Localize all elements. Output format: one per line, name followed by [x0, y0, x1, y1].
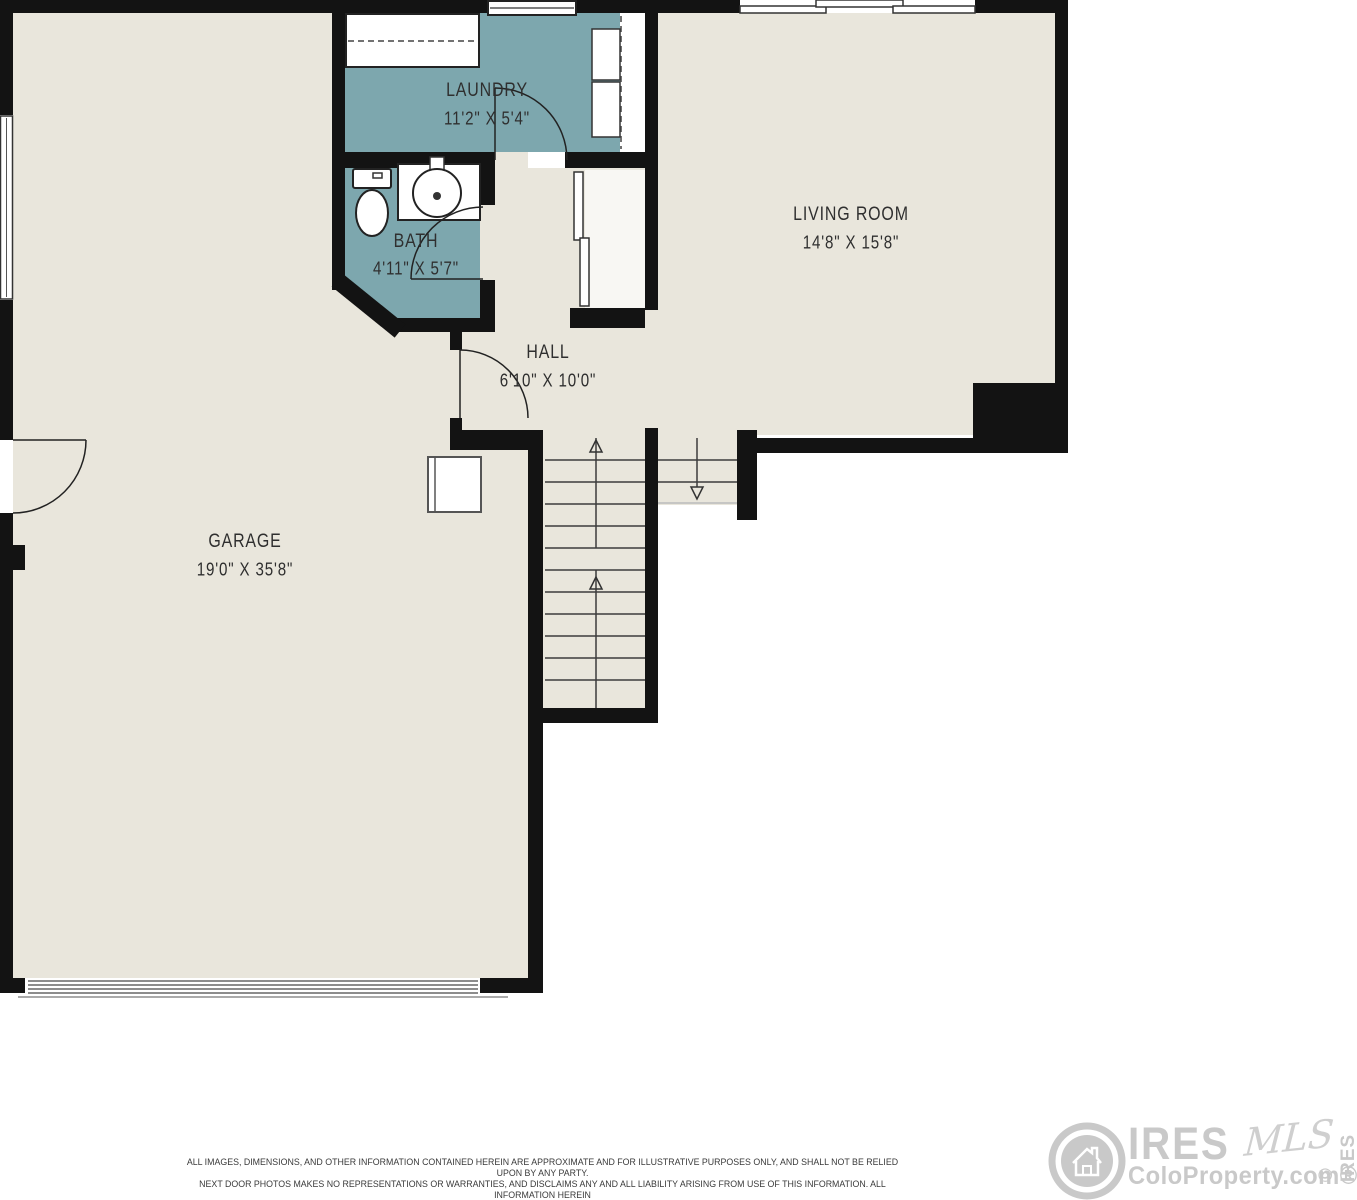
wall-laundry-bath-divider: [332, 152, 495, 168]
room-label-bath: BATH: [394, 231, 439, 253]
disclaimer-line-2: NEXT DOOR PHOTOS MAKES NO REPRESENTATION…: [177, 1179, 907, 1200]
wall-hall-bottom: [450, 430, 543, 450]
wall-living-bottom: [757, 438, 973, 453]
house-roof-icon: [1073, 1148, 1101, 1163]
wall-living-notch: [973, 383, 1068, 453]
wall-left-mid: [0, 300, 13, 440]
wall-top-left: [10, 0, 488, 13]
logo-copyright-text: © IRES: [1316, 1134, 1357, 1182]
stairs-floor: [543, 438, 658, 708]
wall-top-mid: [576, 0, 740, 13]
logo-house-emblem: [1052, 1126, 1122, 1196]
window-pane-left: [740, 6, 826, 13]
laundry-counter-strip: [620, 13, 645, 152]
room-label-laundry: LAUNDRY: [446, 80, 528, 102]
downstairs-floor: [658, 430, 737, 505]
logo-disc: [1061, 1135, 1113, 1187]
living-room-floor-lower: [658, 383, 973, 435]
wall-stairs-center: [645, 428, 658, 723]
disclaimer-line-1: ALL IMAGES, DIMENSIONS, AND OTHER INFORM…: [177, 1157, 907, 1179]
wall-garage-right: [528, 430, 543, 993]
wall-closet-bottom: [570, 308, 645, 328]
room-dims-garage: 19'0" X 35'8": [197, 560, 293, 581]
room-dims-laundry: 11'2" X 5'4": [444, 109, 530, 130]
closet-floor: [585, 170, 645, 310]
wall-garage-bottom: [0, 978, 543, 993]
wall-laundry-left: [332, 0, 345, 290]
room-dims-hall: 6'10" X 10'0": [500, 371, 596, 392]
living-room-floor: [658, 13, 1055, 383]
wall-living-left: [645, 0, 658, 310]
wall-right: [1055, 0, 1068, 383]
room-label-hall: HALL: [526, 342, 569, 364]
living-room-window: [740, 0, 975, 13]
garage-window: [1, 116, 13, 299]
room-dims-living-room: 14'8" X 15'8": [803, 233, 899, 254]
room-dims-bath: 4'11" X 5'7": [373, 259, 459, 280]
logo-ring: [1052, 1126, 1122, 1196]
house-door-icon: [1083, 1166, 1091, 1175]
floorplan-canvas: LAUNDRY 11'2" X 5'4" BATH 4'11" X 5'7" H…: [0, 0, 1357, 1200]
window-pane-center: [816, 0, 903, 7]
wall-left-pilaster: [0, 545, 25, 570]
wall-left-upper: [0, 0, 13, 115]
room-label-garage: GARAGE: [208, 531, 281, 553]
wall-left-lower: [0, 513, 13, 978]
wall-hall-left-upper: [450, 330, 462, 350]
room-label-living-room: LIVING ROOM: [793, 204, 909, 226]
wall-stairs-bottom: [543, 708, 658, 723]
wall-bath-bottom: [390, 318, 495, 332]
disclaimer: ALL IMAGES, DIMENSIONS, AND OTHER INFORM…: [177, 1157, 907, 1200]
wall-downstairs-right: [737, 430, 757, 520]
house-body-icon: [1076, 1161, 1098, 1175]
wall-bath-right-upper: [480, 168, 495, 205]
window-pane-right: [893, 6, 975, 13]
